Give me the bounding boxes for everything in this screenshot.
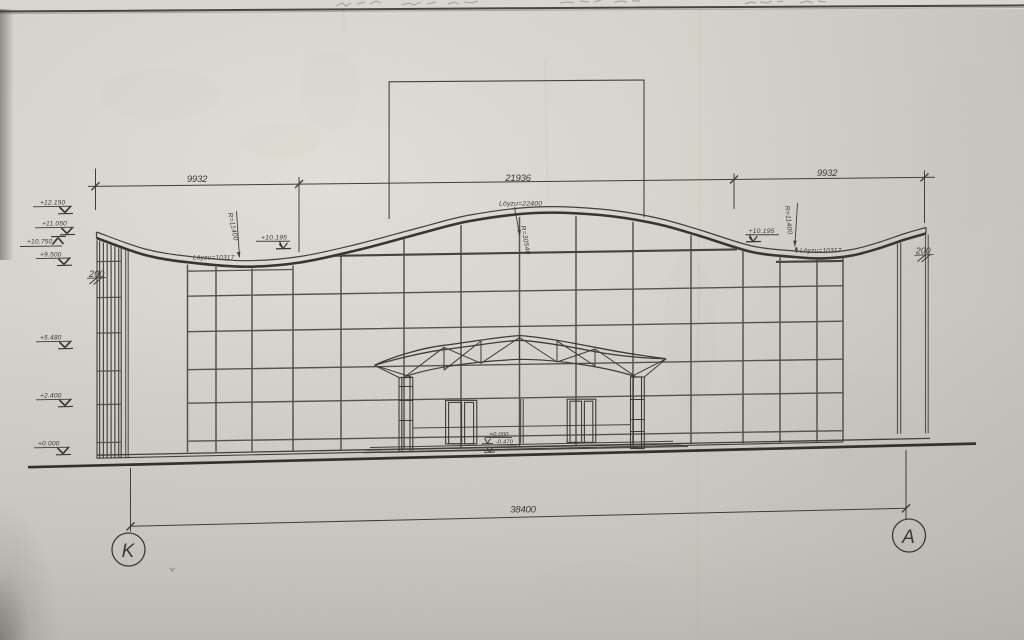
svg-text:K: K — [122, 541, 136, 562]
svg-text:21936: 21936 — [504, 173, 531, 184]
svg-text:=0.000: =0.000 — [490, 432, 510, 438]
svg-text:200: 200 — [915, 246, 931, 256]
svg-text:A: A — [901, 527, 915, 548]
svg-text:+0.000: +0.000 — [38, 441, 60, 448]
svg-text:Löyzu=22400: Löyzu=22400 — [499, 201, 542, 208]
svg-text:+9.500: +9.500 — [40, 252, 62, 259]
svg-text:Löyzu=10317: Löyzu=10317 — [800, 248, 842, 255]
svg-text:+11.050: +11.050 — [42, 221, 67, 228]
svg-text:+12.150: +12.150 — [40, 200, 66, 207]
svg-text:+10.195: +10.195 — [261, 235, 287, 242]
svg-text:9932: 9932 — [187, 174, 208, 185]
svg-text:+2.400: +2.400 — [40, 393, 62, 400]
svg-text:38400: 38400 — [510, 505, 536, 516]
svg-text:+5.480: +5.480 — [40, 335, 62, 342]
svg-text:+10.750: +10.750 — [27, 239, 53, 246]
svg-text:9932: 9932 — [817, 168, 838, 179]
svg-text:Löyzu=10317: Löyzu=10317 — [193, 255, 235, 262]
svg-text:+10.195: +10.195 — [749, 228, 775, 235]
